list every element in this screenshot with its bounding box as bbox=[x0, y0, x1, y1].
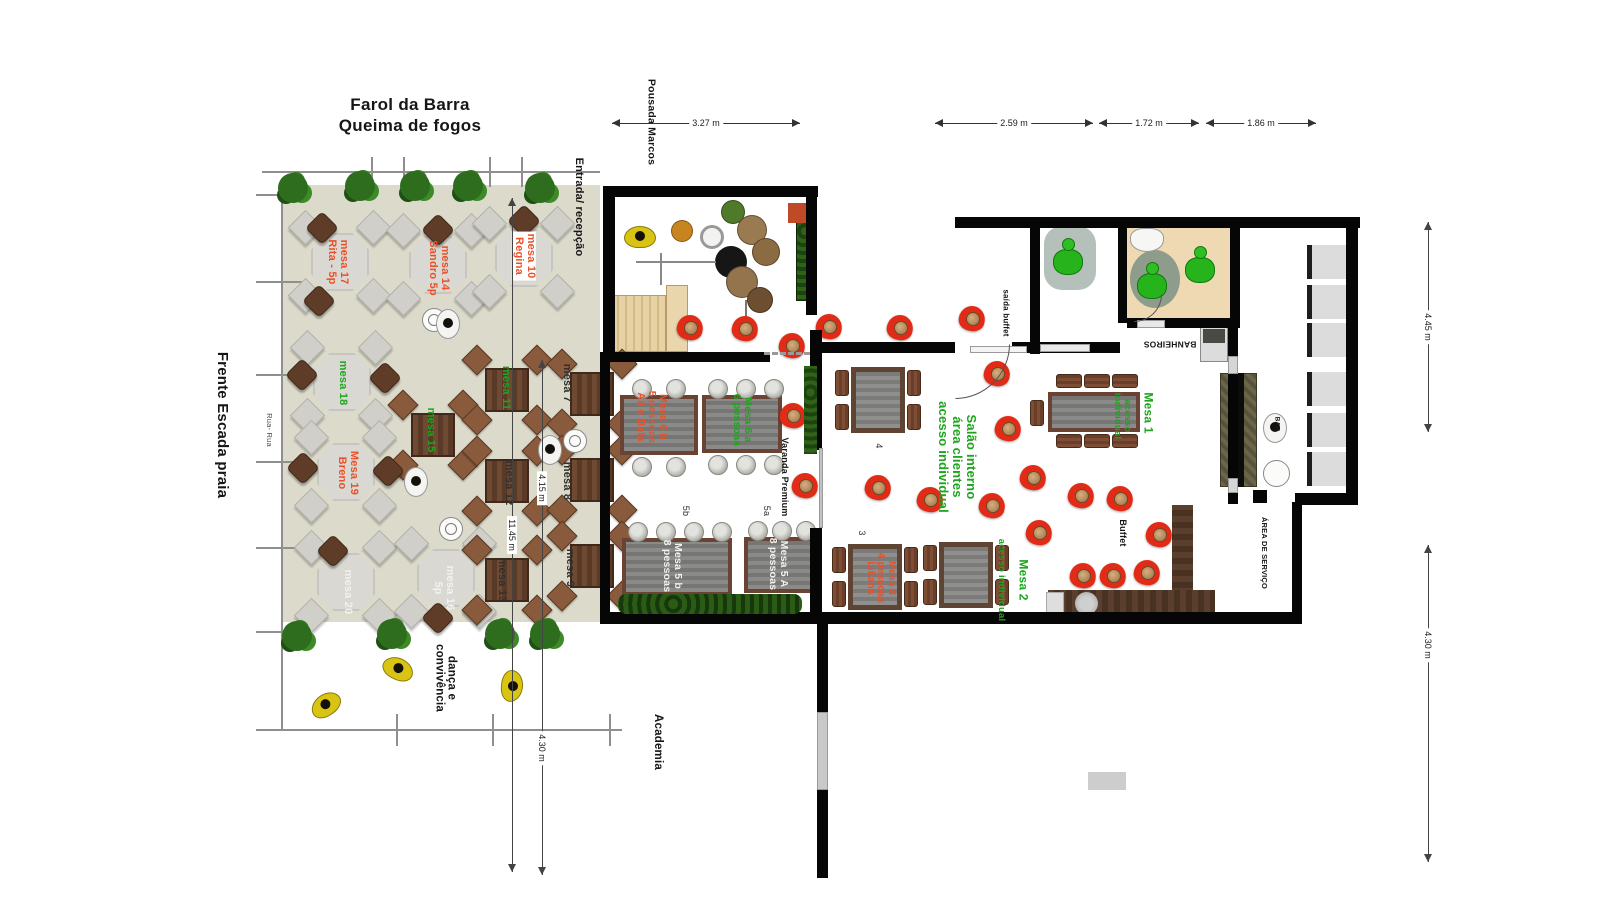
amphora-chair bbox=[666, 457, 686, 477]
salao-chair bbox=[832, 547, 846, 573]
label-label-4: 4 bbox=[873, 443, 883, 448]
survey-line bbox=[396, 714, 398, 746]
label-label-5a: 5a bbox=[761, 506, 771, 516]
stage-stairs-icon bbox=[610, 295, 666, 352]
red-chair-person bbox=[979, 493, 1005, 518]
mesa-1-chair bbox=[1056, 374, 1082, 388]
waiter-person-icon bbox=[436, 309, 460, 339]
dim-label: 1.72 m bbox=[1132, 118, 1166, 128]
label-saida-buffet: saída buffet bbox=[1001, 289, 1010, 336]
label-mesa-2-acesso: acesso individual bbox=[996, 539, 1006, 622]
dim-arrow-left bbox=[612, 119, 620, 127]
red-chair-person bbox=[1100, 563, 1126, 588]
label-varanda-premium: Varanda Premium bbox=[779, 437, 789, 516]
mesa-1-chair bbox=[1056, 434, 1082, 448]
dim-arrow-right bbox=[1191, 119, 1199, 127]
label-mesa-2: Mesa 2 bbox=[1017, 559, 1030, 600]
mic-stand-pole-icon bbox=[660, 253, 662, 285]
label-mesa-20: mesa 20 bbox=[341, 570, 353, 615]
survey-line bbox=[262, 171, 600, 173]
label-label-5b: 5b bbox=[680, 506, 690, 516]
amphora-chair bbox=[736, 455, 756, 475]
dim-arrow-right bbox=[1308, 119, 1316, 127]
dashed-door bbox=[764, 352, 810, 355]
red-chair-person bbox=[1068, 483, 1094, 508]
mic-stand-bar-icon bbox=[636, 261, 716, 263]
red-chair-person bbox=[1134, 560, 1160, 585]
drum-kit-icon bbox=[752, 238, 780, 266]
red-chair-person bbox=[995, 416, 1021, 441]
label-mesa-5b: Mesa 5 b 8 pessoas bbox=[661, 540, 683, 593]
dim-label: 4.15 m bbox=[537, 471, 547, 505]
wall bbox=[1346, 217, 1358, 505]
person-yellow-icon bbox=[624, 226, 656, 248]
salao-chair bbox=[923, 545, 937, 571]
label-entrada-recepcao: Entrada/ recepção bbox=[572, 158, 584, 257]
dim-arrow-down bbox=[538, 867, 546, 875]
varanda-hedge-icon bbox=[804, 366, 817, 454]
red-chair-person bbox=[1020, 465, 1046, 490]
person-green-icon bbox=[1185, 246, 1215, 286]
label-rua-rua: Rua- Rua bbox=[265, 413, 273, 447]
label-mesa-5a: Mesa 5 A 8 pessoas bbox=[767, 538, 789, 591]
dim-arrow-right bbox=[792, 119, 800, 127]
red-chair-person bbox=[1107, 486, 1133, 511]
title-line-2: Queima de fogos bbox=[339, 115, 481, 136]
salao-chair bbox=[907, 404, 921, 430]
door-arc bbox=[955, 344, 1010, 399]
dim-arrow-up bbox=[1424, 545, 1432, 553]
mesa-1-chair bbox=[1084, 374, 1110, 388]
red-chair-person bbox=[1026, 520, 1052, 545]
tree-icon bbox=[345, 171, 375, 201]
mesa-1-chair bbox=[1084, 434, 1110, 448]
storage-shelf bbox=[1307, 245, 1347, 279]
dim-label: 3.27 m bbox=[689, 118, 723, 128]
salao-chair bbox=[835, 404, 849, 430]
waiter-person-icon bbox=[404, 467, 428, 497]
dim-label: 4.45 m bbox=[1423, 310, 1433, 344]
label-buffet: Buffet bbox=[1117, 519, 1127, 546]
label-mesa-3: Mesa 3 4 pessoas Liliana bbox=[864, 553, 896, 603]
label-mesa-14: mesa 14 Sandro 5p bbox=[426, 240, 450, 296]
label-mesa-18: mesa 18 bbox=[336, 361, 348, 406]
amphora-chair bbox=[764, 379, 784, 399]
dim-label: 1.86 m bbox=[1244, 118, 1278, 128]
red-chair-person bbox=[1146, 522, 1172, 547]
amphora-chair bbox=[628, 522, 648, 542]
door bbox=[1228, 478, 1238, 493]
red-chair-person bbox=[959, 306, 985, 331]
dim-arrow-down bbox=[1424, 424, 1432, 432]
label-pousada-marcos: Pousada Marcos bbox=[645, 79, 656, 165]
dim-label: 4.30 m bbox=[537, 731, 547, 765]
floor-plan: Farol da Barra Queima de fogos Pousada M… bbox=[0, 0, 1600, 900]
tree-icon bbox=[278, 173, 308, 203]
dim-label: 2.59 m bbox=[997, 118, 1031, 128]
storage-shelf bbox=[1307, 372, 1347, 406]
salao-chair bbox=[923, 579, 937, 605]
red-chair-person bbox=[677, 315, 703, 340]
wall bbox=[603, 186, 818, 197]
toilet-icon bbox=[1130, 228, 1164, 252]
dim-line bbox=[1428, 545, 1429, 862]
wall bbox=[1292, 502, 1302, 614]
wall bbox=[1228, 322, 1238, 504]
dim-line bbox=[542, 360, 543, 875]
dim-arrow-right bbox=[1085, 119, 1093, 127]
salao-chair bbox=[835, 370, 849, 396]
label-mesa-15: mesa 15 bbox=[424, 408, 436, 453]
wall bbox=[1295, 493, 1357, 505]
mesa-2-table bbox=[939, 542, 993, 608]
dim-arrow-up bbox=[508, 198, 516, 206]
table-4 bbox=[851, 367, 905, 433]
drum-kit-icon bbox=[671, 220, 693, 242]
title-line-1: Farol da Barra bbox=[339, 94, 481, 115]
dim-arrow-down bbox=[508, 864, 516, 872]
person-yellow-icon bbox=[307, 687, 346, 723]
salao-chair bbox=[904, 547, 918, 573]
red-chair-person bbox=[780, 403, 806, 428]
label-mesa-19: Mesa 19 Breno bbox=[335, 451, 359, 495]
storage-shelf bbox=[1307, 413, 1347, 447]
label-mesa-6a: Mesa 6 a 6 pessoas bbox=[731, 394, 753, 447]
label-area-de-servico: ÁREA DE SERVIÇO bbox=[1260, 517, 1268, 589]
label-mesa-8: mesa 8 bbox=[560, 462, 572, 501]
label-danca-convivencia: dança e convivência bbox=[433, 644, 458, 712]
waiter-tray-icon bbox=[563, 429, 587, 453]
label-frente-escada-praia: Frente Escada praia bbox=[214, 352, 230, 498]
label-mesa-10: mesa 10 Regina bbox=[512, 232, 536, 281]
person-green-icon bbox=[1053, 238, 1083, 278]
amphora-chair bbox=[632, 457, 652, 477]
door bbox=[1228, 356, 1238, 374]
mesa-1-chair bbox=[1030, 400, 1044, 426]
dim-arrow-left bbox=[1206, 119, 1214, 127]
varanda-bottom-hedge-icon bbox=[618, 594, 802, 614]
storage-shelf bbox=[1307, 452, 1347, 486]
label-mesa-13: mesa 13 bbox=[495, 558, 507, 603]
tree-icon bbox=[525, 173, 555, 203]
wall bbox=[1118, 228, 1127, 323]
dim-label: 11.45 m bbox=[507, 516, 517, 554]
door bbox=[1137, 320, 1165, 328]
person-yellow-icon bbox=[379, 652, 417, 685]
salao-chair bbox=[832, 581, 846, 607]
drum-kit-icon bbox=[747, 287, 773, 313]
dim-arrow-down bbox=[1424, 854, 1432, 862]
bar-table-icon bbox=[1263, 460, 1290, 487]
tree-icon bbox=[377, 619, 407, 649]
label-mesa-1-acesso: acesso individual bbox=[1112, 393, 1132, 439]
survey-line bbox=[489, 157, 491, 187]
tree-icon bbox=[282, 621, 312, 651]
survey-line bbox=[521, 157, 523, 187]
dim-arrow-up bbox=[1424, 222, 1432, 230]
red-chair-person bbox=[792, 473, 818, 498]
door bbox=[817, 712, 828, 790]
survey-line bbox=[492, 714, 494, 746]
page-title: Farol da Barra Queima de fogos bbox=[339, 94, 481, 137]
tree-icon bbox=[485, 619, 515, 649]
label-mesa-6b: Mesa 6 b 5 pessoas Ali e Bela bbox=[634, 391, 668, 444]
label-mesa-17: mesa 17 Rita - 5p bbox=[325, 239, 349, 284]
salao-chair bbox=[904, 581, 918, 607]
red-chair-person bbox=[1070, 563, 1096, 588]
wall bbox=[1030, 228, 1040, 354]
amphora-chair bbox=[708, 455, 728, 475]
door bbox=[1040, 344, 1090, 352]
appliance-top bbox=[1203, 329, 1225, 343]
service-rect bbox=[1088, 772, 1126, 790]
buffet-side-table bbox=[1046, 592, 1064, 614]
wall bbox=[1230, 228, 1240, 328]
wall bbox=[600, 352, 610, 620]
amphora-chair bbox=[712, 522, 732, 542]
wall bbox=[955, 217, 1360, 228]
label-mesa-7: mesa 7 bbox=[560, 364, 572, 403]
storage-shelf bbox=[1307, 285, 1347, 319]
survey-line bbox=[281, 729, 622, 731]
salao-chair bbox=[907, 370, 921, 396]
door bbox=[819, 448, 823, 528]
tree-icon bbox=[400, 171, 430, 201]
label-salao-interno: Salão interno área clientes acesso indiv… bbox=[936, 401, 978, 513]
survey-line bbox=[609, 714, 611, 746]
red-chair-person bbox=[865, 475, 891, 500]
orange-cabinet-icon bbox=[788, 203, 808, 223]
wall bbox=[810, 528, 822, 618]
label-bar: BAR bbox=[1273, 417, 1280, 432]
survey-line bbox=[281, 185, 283, 731]
dim-arrow-up bbox=[538, 360, 546, 368]
label-label-3: 3 bbox=[856, 530, 866, 535]
amphora-chair bbox=[748, 521, 768, 541]
dim-arrow-left bbox=[935, 119, 943, 127]
amphora-chair bbox=[684, 522, 704, 542]
storage-shelf bbox=[1307, 323, 1347, 357]
amphora-chair bbox=[666, 379, 686, 399]
label-mesa-9: mesa 9 bbox=[563, 549, 575, 588]
amphora-chair bbox=[708, 379, 728, 399]
wall bbox=[815, 342, 955, 353]
tree-icon bbox=[453, 171, 483, 201]
wall bbox=[806, 197, 817, 315]
wall bbox=[1253, 490, 1267, 503]
tree-icon bbox=[530, 619, 560, 649]
cymbal-icon bbox=[700, 225, 724, 249]
label-banheiros: BANHEIROS bbox=[1144, 339, 1197, 348]
survey-line bbox=[256, 281, 302, 283]
dim-label: 4.30 m bbox=[1423, 628, 1433, 662]
wall bbox=[603, 186, 615, 356]
wall bbox=[817, 624, 828, 714]
red-chair-person bbox=[887, 315, 913, 340]
mesa-1-chair bbox=[1112, 374, 1138, 388]
label-mesa-1: Mesa 1 bbox=[1142, 392, 1155, 433]
label-academia: Academia bbox=[652, 714, 664, 770]
red-chair-person bbox=[732, 316, 758, 341]
label-mesa-16: mesa 16 5p bbox=[431, 566, 455, 611]
wall bbox=[600, 352, 770, 362]
wall bbox=[817, 790, 828, 878]
dim-arrow-left bbox=[1099, 119, 1107, 127]
waiter-tray-icon bbox=[439, 517, 463, 541]
survey-line bbox=[256, 729, 302, 731]
label-mesa-11: mesa 11 bbox=[499, 366, 511, 410]
